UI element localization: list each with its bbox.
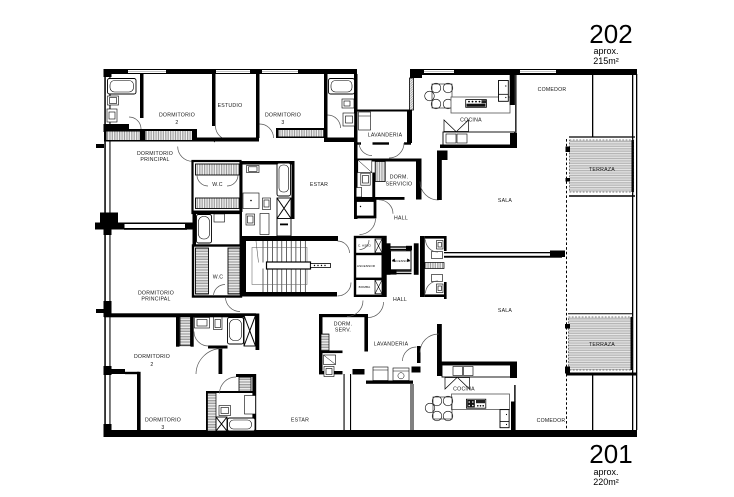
svg-text:DORMITORIO: DORMITORIO [159,113,195,119]
svg-text:DORM.: DORM. [390,175,409,181]
svg-text:2: 2 [175,120,178,126]
svg-text:ESTUDIO: ESTUDIO [218,103,243,109]
svg-text:PRINCIPAL: PRINCIPAL [141,297,170,303]
svg-text:HALL: HALL [393,297,407,303]
svg-text:C. ASEO: C. ASEO [358,244,372,248]
svg-text:ESTAR: ESTAR [310,182,328,188]
svg-text:SERV.: SERV. [335,327,351,333]
svg-text:SERVICIO: SERVICIO [386,182,413,188]
svg-text:aprox.: aprox. [593,467,618,477]
svg-text:ESTAR: ESTAR [291,418,309,424]
svg-text:SALA: SALA [498,308,513,314]
svg-text:3: 3 [161,425,164,431]
svg-text:2: 2 [150,362,153,368]
svg-text:201: 201 [589,439,632,469]
svg-text:ASCENSOR: ASCENSOR [357,264,376,268]
svg-text:HALL: HALL [394,215,408,221]
svg-text:W.C: W.C [213,275,224,281]
svg-text:3: 3 [281,120,284,126]
svg-text:W.C: W.C [212,182,223,188]
svg-text:220m²: 220m² [593,477,619,487]
svg-text:aprox.: aprox. [593,46,618,56]
svg-text:LAVANDERIA: LAVANDERIA [374,342,409,348]
svg-text:TERRAZA: TERRAZA [589,167,615,173]
svg-text:PRINCIPAL: PRINCIPAL [140,157,169,163]
svg-text:BOMBA: BOMBA [359,285,372,289]
svg-text:COMEDOR: COMEDOR [538,87,567,93]
svg-text:LAVANDERIA: LAVANDERIA [368,133,403,139]
svg-text:TERRAZA: TERRAZA [589,342,615,348]
svg-text:215m²: 215m² [593,56,619,66]
svg-text:DORMITORIO: DORMITORIO [145,418,181,424]
svg-text:COMEDOR: COMEDOR [537,418,566,424]
svg-text:COCINA: COCINA [460,117,482,123]
svg-text:SALA: SALA [498,198,513,204]
svg-text:202: 202 [589,19,632,49]
svg-text:DORMITORIO: DORMITORIO [265,113,301,119]
svg-text:COCINA: COCINA [453,387,475,393]
svg-text:DORMITORIO: DORMITORIO [134,354,170,360]
